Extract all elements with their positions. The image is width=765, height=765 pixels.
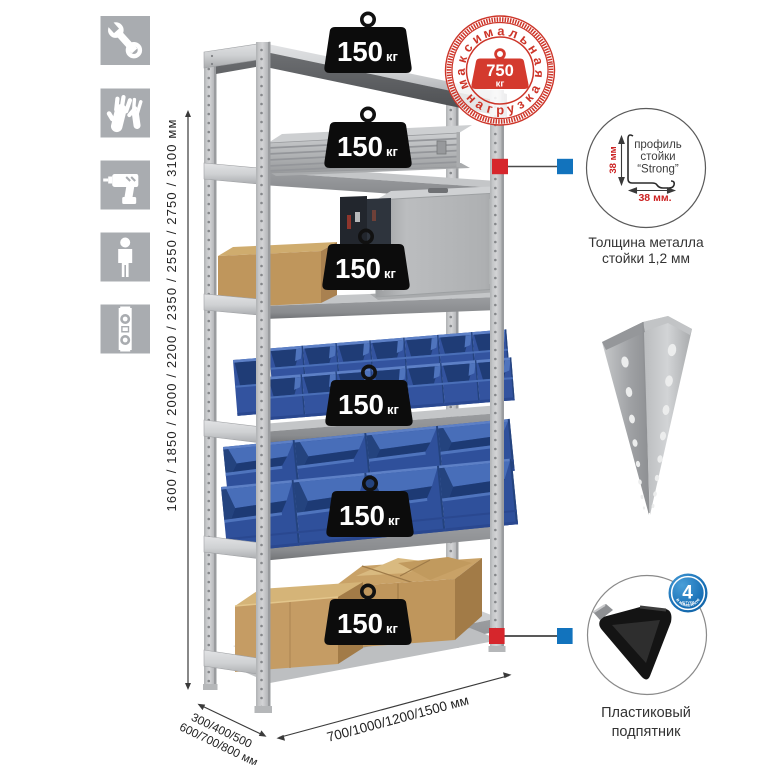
- svg-text:38 мм: 38 мм: [608, 146, 619, 173]
- svg-text:кг: кг: [386, 144, 399, 159]
- svg-text:стойки: стойки: [640, 151, 675, 163]
- svg-text:кг: кг: [384, 266, 397, 281]
- svg-text:стойки 1,2 мм: стойки 1,2 мм: [602, 251, 690, 266]
- svg-text:750: 750: [486, 62, 514, 80]
- svg-text:кг: кг: [388, 513, 401, 528]
- svg-text:1600 / 1850 / 2000 / 2200 / 23: 1600 / 1850 / 2000 / 2200 / 2350 / 2550 …: [164, 118, 179, 511]
- svg-text:Пластиковый: Пластиковый: [601, 705, 691, 721]
- svg-text:профиль: профиль: [634, 139, 682, 151]
- svg-text:р: р: [496, 102, 504, 117]
- svg-text:кг: кг: [386, 621, 399, 636]
- svg-text:подпятник: подпятник: [612, 724, 682, 740]
- svg-text:а: а: [497, 23, 505, 38]
- svg-text:кг: кг: [386, 49, 399, 64]
- svg-text:кг: кг: [496, 79, 505, 90]
- svg-text:150: 150: [338, 389, 384, 420]
- svg-text:150: 150: [339, 500, 385, 531]
- svg-text:150: 150: [337, 608, 383, 639]
- svg-text:150: 150: [337, 36, 383, 67]
- svg-text:150: 150: [335, 253, 381, 284]
- svg-text:“Strong”: “Strong”: [637, 164, 679, 176]
- svg-text:150: 150: [337, 131, 383, 162]
- svg-text:я: я: [532, 70, 548, 79]
- svg-text:38 мм.: 38 мм.: [638, 192, 671, 204]
- svg-text:кг: кг: [387, 402, 400, 417]
- svg-text:Толщина металла: Толщина металла: [588, 235, 704, 250]
